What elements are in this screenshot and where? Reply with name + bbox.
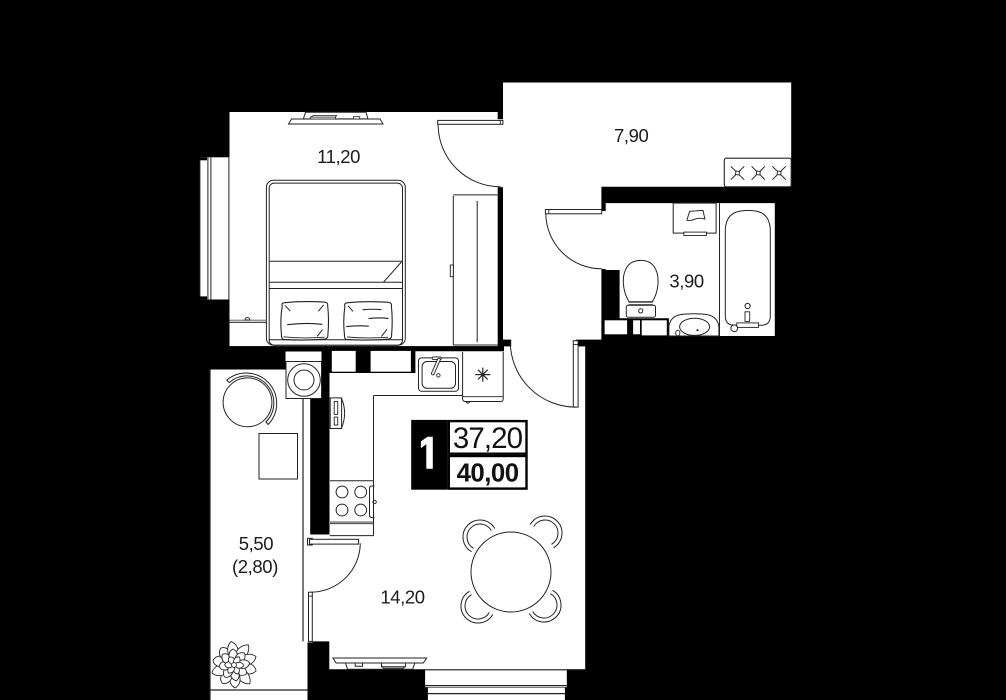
svg-text:40,00: 40,00 — [457, 460, 519, 488]
svg-text:37,20: 37,20 — [453, 422, 523, 455]
svg-text:14,20: 14,20 — [380, 586, 424, 607]
svg-text:3,90: 3,90 — [669, 271, 704, 292]
svg-text:(2,80): (2,80) — [232, 556, 278, 577]
svg-text:7,90: 7,90 — [614, 125, 649, 146]
svg-text:11,20: 11,20 — [317, 146, 360, 167]
svg-text:5,50: 5,50 — [239, 533, 274, 554]
